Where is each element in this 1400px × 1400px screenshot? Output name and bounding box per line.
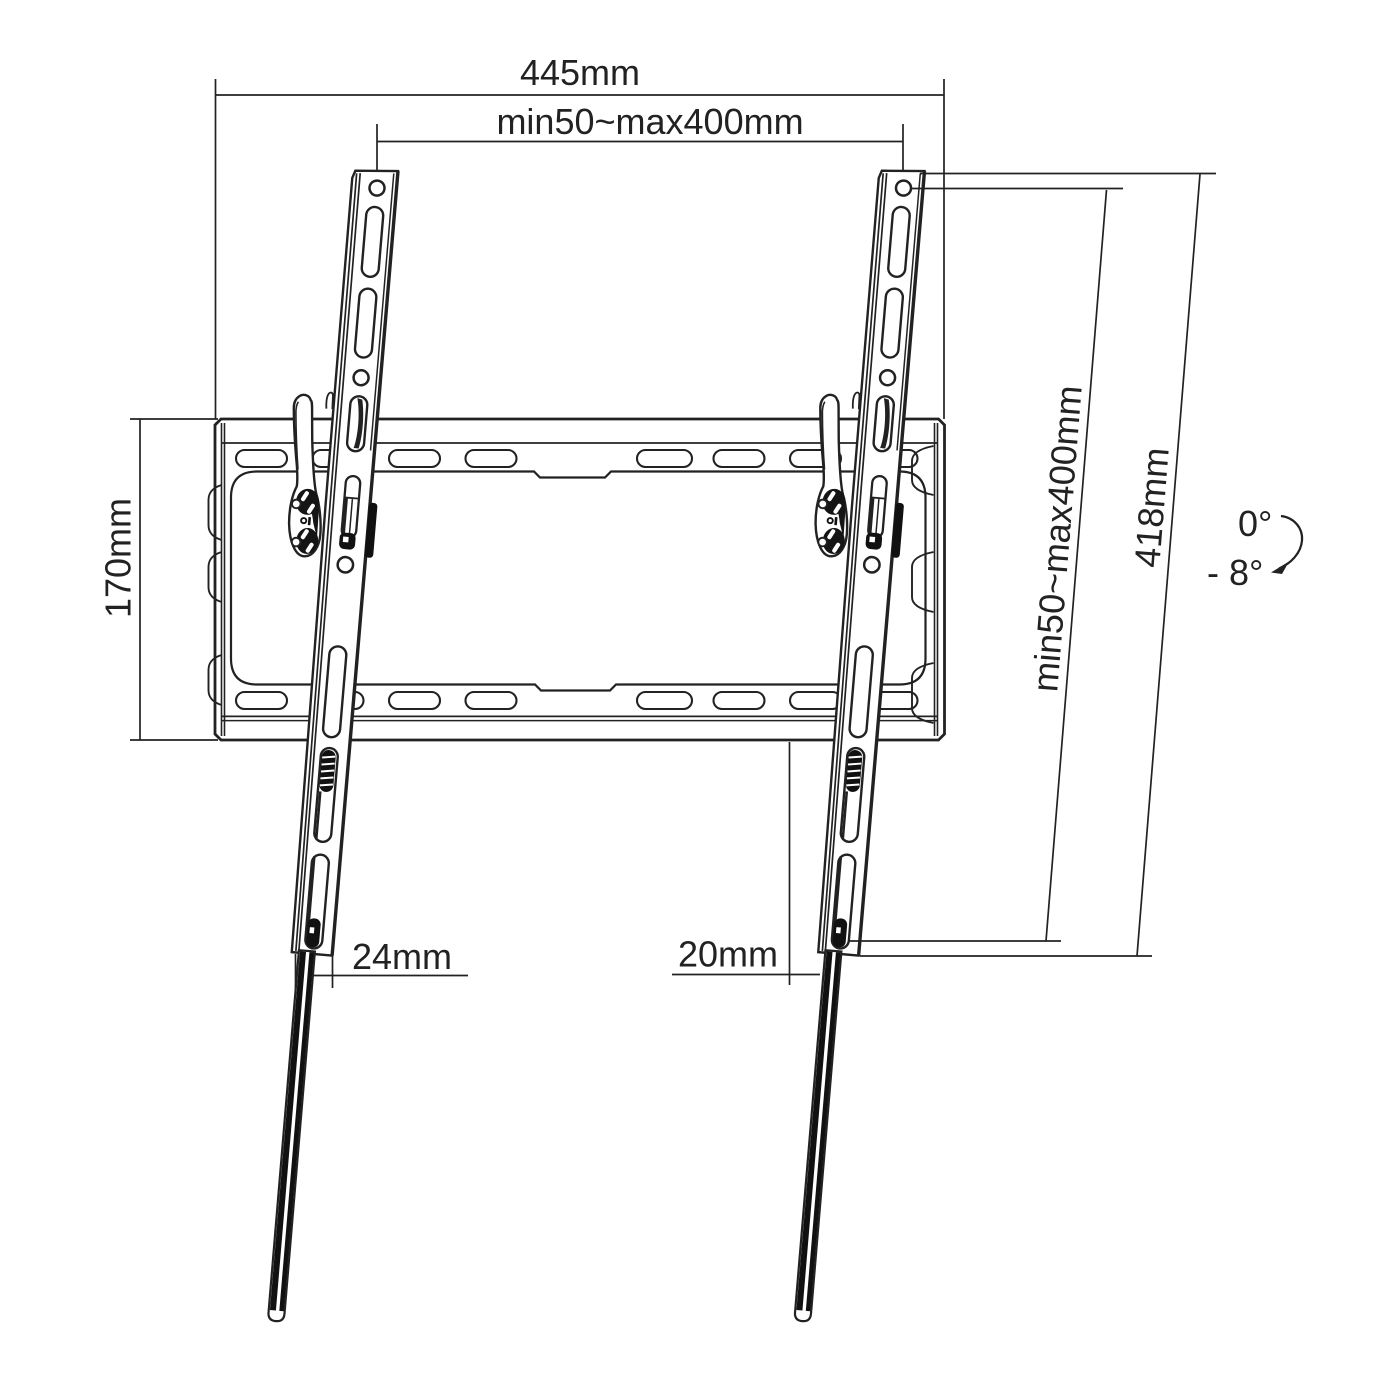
svg-text:24mm: 24mm [352, 936, 452, 977]
svg-text:20mm: 20mm [678, 934, 778, 975]
svg-text:- 8°: - 8° [1207, 552, 1263, 593]
svg-text:170mm: 170mm [98, 498, 139, 618]
svg-text:445mm: 445mm [520, 52, 640, 93]
svg-text:0°: 0° [1238, 503, 1272, 544]
svg-text:min50~max400mm: min50~max400mm [496, 101, 803, 142]
